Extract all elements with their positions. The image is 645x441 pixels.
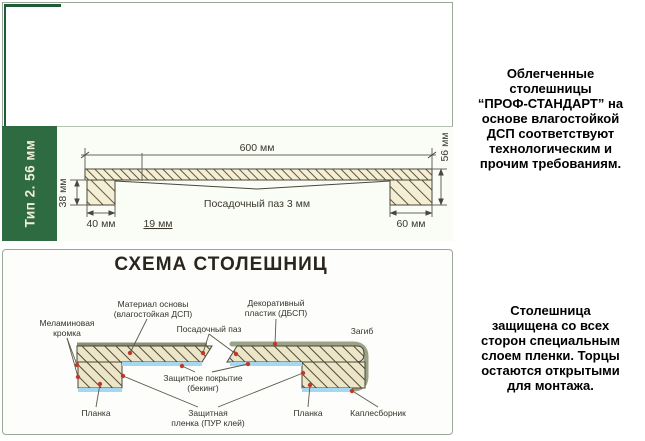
dimension-60mm bbox=[390, 205, 432, 217]
schema-title: СХЕМА СТОЛЕШНИЦ bbox=[2, 254, 440, 276]
label-mounting-groove: Посадочный паз bbox=[177, 324, 242, 334]
label-drip-collector: Каплесборник bbox=[350, 408, 406, 418]
label-plank-left: Планка bbox=[81, 408, 110, 418]
label-backing-1: Защитное покрытие bbox=[163, 373, 243, 383]
dim-19-label: 19 мм bbox=[143, 218, 172, 230]
label-plank-right: Планка bbox=[293, 408, 322, 418]
countertop-cross-section-drawing: 600 мм Посадочный паз 3 мм 38 мм 40 мм bbox=[57, 127, 453, 241]
label-protective-film-1: Защитная bbox=[188, 408, 228, 418]
page: Тип 2. 56 мм bbox=[0, 0, 645, 441]
description-text-top: Облегченные столешницы “ПРОФ-СТАНДАРТ” н… bbox=[458, 66, 643, 171]
schema-drawing: Меламиновая кромка Материал основы (влаг… bbox=[12, 293, 442, 433]
top-left-accent-border bbox=[4, 4, 61, 7]
technical-drawing-area: 600 мм Посадочный паз 3 мм 38 мм 40 мм bbox=[57, 127, 453, 241]
left-slab bbox=[77, 346, 212, 362]
label-decorative-plastic-1: Декоративный bbox=[247, 298, 304, 308]
countertop-top-layer bbox=[85, 169, 432, 180]
dim-40-label: 40 мм bbox=[86, 218, 115, 230]
mounting-groove-profile bbox=[115, 181, 390, 189]
film-under-left-plank bbox=[78, 388, 122, 392]
type-label-sidebar: Тип 2. 56 мм bbox=[2, 126, 57, 241]
dimension-56mm bbox=[432, 169, 447, 205]
left-accent-border bbox=[4, 4, 6, 131]
label-base-material-1: Материал основы bbox=[118, 299, 189, 309]
label-backing-2: (бекинг) bbox=[187, 383, 219, 393]
label-bend: Загиб bbox=[351, 326, 374, 336]
dim-600-label: 600 мм bbox=[240, 142, 275, 154]
description-text-bottom: Столешница защищена со всех сторон специ… bbox=[458, 303, 643, 393]
right-slab bbox=[227, 346, 364, 362]
countertop-left-leg bbox=[87, 180, 115, 205]
label-melamine-edge-2: кромка bbox=[53, 328, 81, 338]
backing-film-left bbox=[122, 362, 202, 366]
dim-60-label: 60 мм bbox=[396, 218, 425, 230]
label-decorative-plastic-2: пластик (ДБСП) bbox=[245, 308, 308, 318]
dim-56-label: 56 мм bbox=[439, 132, 451, 161]
label-melamine-edge-1: Меламиновая bbox=[39, 318, 94, 328]
dimension-38mm bbox=[70, 180, 87, 205]
dimension-40mm bbox=[87, 205, 115, 217]
countertop-right-leg bbox=[390, 180, 432, 205]
dim-38-label: 38 мм bbox=[57, 178, 69, 207]
label-protective-film-2: пленка (ПУР клей) bbox=[171, 418, 245, 428]
type-label: Тип 2. 56 мм bbox=[22, 140, 37, 228]
groove-label: Посадочный паз 3 мм bbox=[204, 198, 310, 210]
label-base-material-2: (влагостойкая ДСП) bbox=[114, 309, 193, 319]
